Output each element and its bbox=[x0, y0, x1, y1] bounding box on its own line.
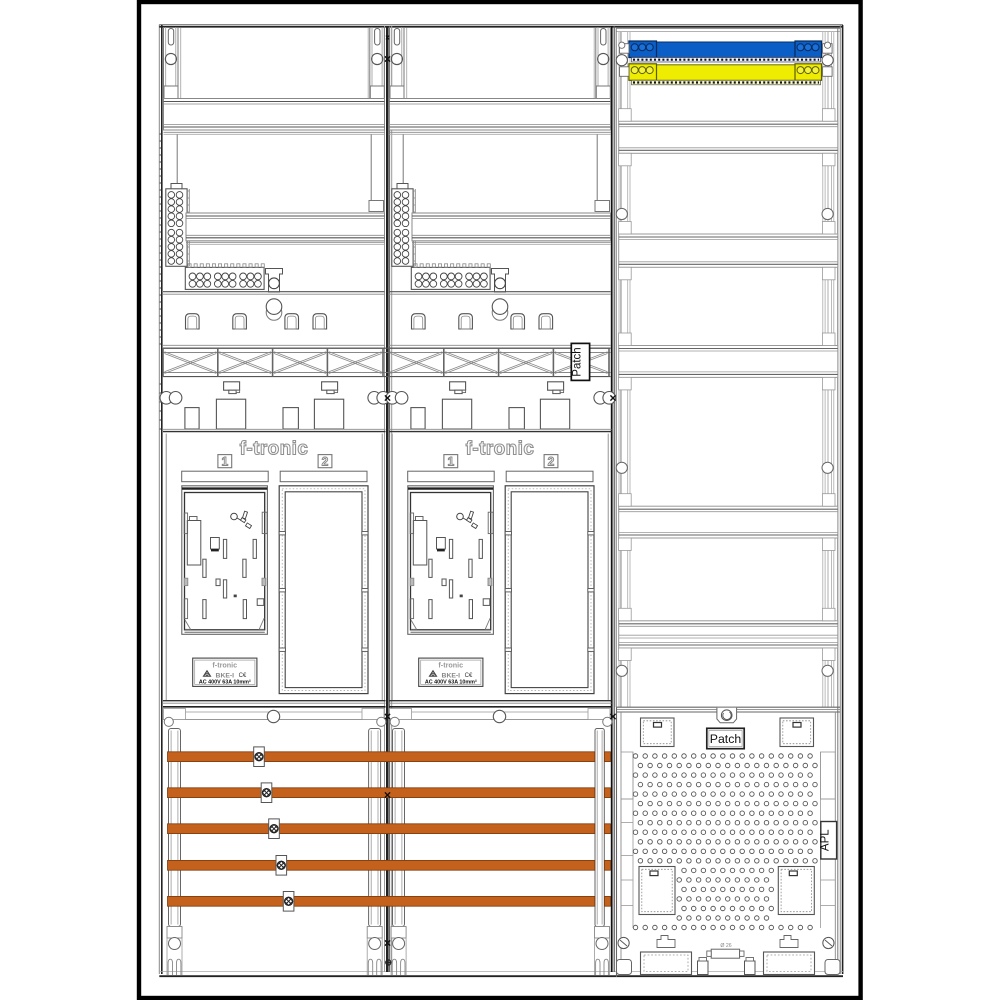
svg-text:Ø 26: Ø 26 bbox=[720, 943, 731, 949]
svg-text:f-tronic: f-tronic bbox=[240, 438, 309, 459]
svg-text:BKE-I: BKE-I bbox=[442, 672, 461, 679]
svg-text:BKE-I: BKE-I bbox=[216, 672, 235, 679]
svg-text:2: 2 bbox=[548, 454, 555, 468]
svg-text:AC 400V 63A 10mm²: AC 400V 63A 10mm² bbox=[425, 679, 477, 685]
svg-text:f-tronic: f-tronic bbox=[438, 661, 463, 670]
svg-text:APL: APL bbox=[820, 829, 832, 851]
svg-text:AC 400V 63A 10mm²: AC 400V 63A 10mm² bbox=[199, 679, 251, 685]
svg-text:C€: C€ bbox=[239, 673, 247, 679]
svg-text:C€: C€ bbox=[465, 673, 473, 679]
svg-text:1: 1 bbox=[221, 454, 228, 468]
svg-text:Patch: Patch bbox=[572, 347, 584, 376]
svg-text:Patch: Patch bbox=[710, 732, 742, 746]
svg-text:1: 1 bbox=[447, 454, 454, 468]
svg-text:2: 2 bbox=[322, 454, 329, 468]
svg-text:f-tronic: f-tronic bbox=[466, 438, 535, 459]
svg-text:f-tronic: f-tronic bbox=[212, 661, 237, 670]
